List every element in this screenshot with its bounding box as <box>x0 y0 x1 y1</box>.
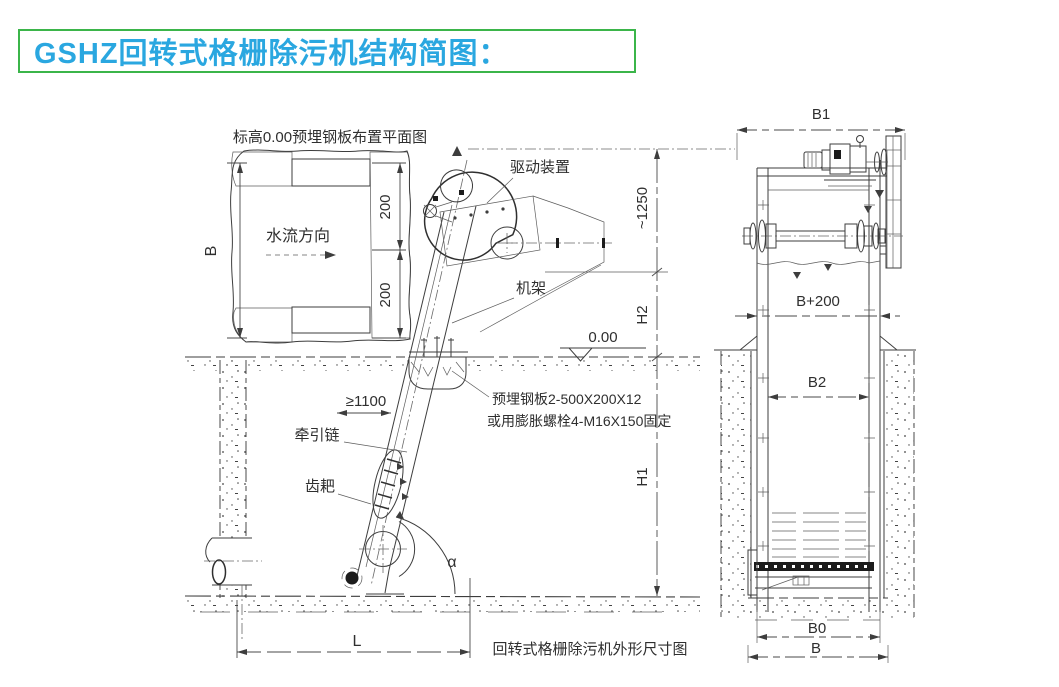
dim-b2: B2 <box>808 374 826 391</box>
embedded-plate-top <box>292 159 370 186</box>
cross-shaft <box>742 220 903 252</box>
height-dimensions: ~1250 H2 H1 <box>468 149 735 596</box>
side-view-caption: 回转式格栅除污机外形尺寸图 <box>492 641 687 658</box>
dim-200-lower: 200 <box>377 282 394 307</box>
flow-arrow-head <box>325 251 336 259</box>
mount-plate <box>880 136 901 268</box>
structure-diagram: 标高0.00预埋钢板布置平面图 水流方向 B <box>0 0 1059 687</box>
dim-b-plus-200: B+200 <box>796 293 840 310</box>
embedded-plate-note-line1: 预埋钢板2-500X200X12 <box>492 391 642 407</box>
elevation-mark: 0.00 <box>560 329 646 361</box>
dim-h1: H1 <box>634 467 651 486</box>
dim-l: L <box>353 633 362 650</box>
rake <box>367 447 409 521</box>
drive-unit-label: 驱动装置 <box>510 159 570 176</box>
dim-b0: B0 <box>808 620 826 637</box>
angle-alpha-label: α <box>447 554 456 571</box>
inclined-frame <box>357 160 476 594</box>
side-view: 0.00 <box>185 146 735 658</box>
plan-outline <box>231 150 411 343</box>
dim-b1: B1 <box>812 106 830 123</box>
plan-view: 标高0.00预埋钢板布置平面图 水流方向 B <box>203 128 427 343</box>
frame-label: 机架 <box>516 280 546 297</box>
plan-view-title: 标高0.00预埋钢板布置平面图 <box>233 128 427 146</box>
flow-direction-label: 水流方向 <box>266 227 330 245</box>
embedded-plate-bottom <box>292 307 370 333</box>
embedded-plate-note-line2: 或用膨胀螺栓4-M16X150固定 <box>487 413 671 429</box>
front-view: B1 <box>714 106 916 663</box>
page: GSHZ回转式格栅除污机结构简图： 标高0.00预埋钢板布置平面图 <box>0 0 1059 687</box>
front-floor <box>748 598 888 620</box>
dim-b-plan: B <box>203 246 220 257</box>
length-dimension: L <box>237 578 470 658</box>
dim-h2: H2 <box>634 305 651 324</box>
dim-1250: ~1250 <box>634 187 651 229</box>
elevation-label: 0.00 <box>588 329 617 346</box>
dim-min-1100: ≥1100 <box>346 393 387 410</box>
rake-label: 齿耙 <box>305 478 335 495</box>
traction-chain-label: 牵引链 <box>294 427 339 444</box>
grille-bars <box>772 513 866 557</box>
channel-floor <box>185 596 700 597</box>
dim-200-upper: 200 <box>377 194 394 219</box>
drive-motor <box>793 136 888 280</box>
dim-b-front: B <box>811 640 821 657</box>
angle-arc <box>396 517 455 594</box>
